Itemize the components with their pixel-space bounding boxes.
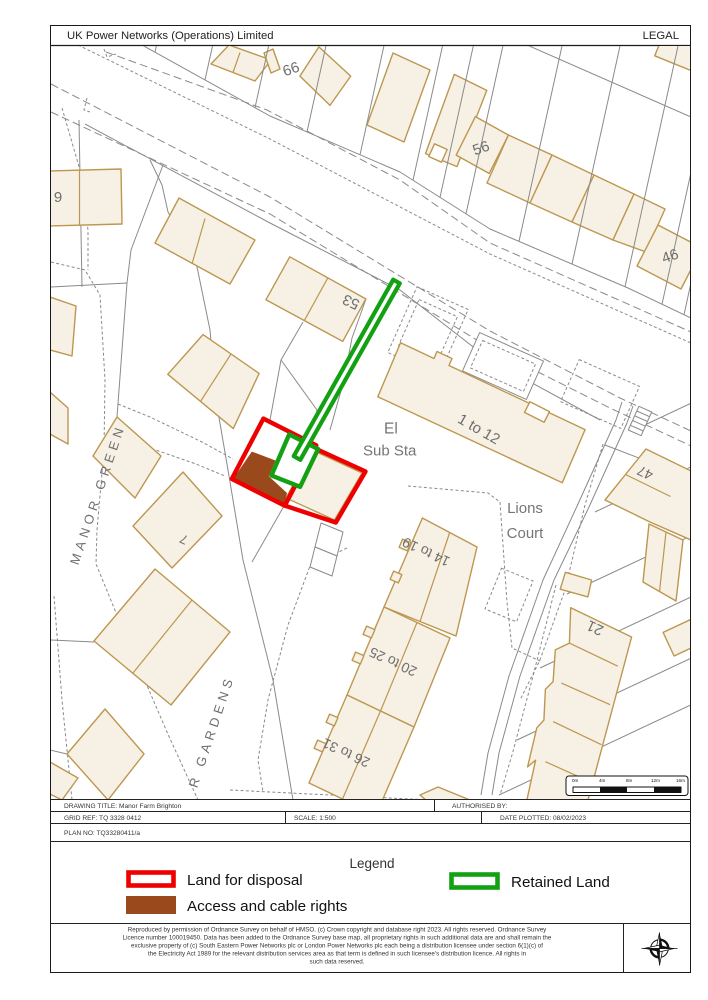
svg-text:R GARDENS: R GARDENS bbox=[186, 673, 238, 789]
svg-text:GRID REF: TQ 3328 0412: GRID REF: TQ 3328 0412 bbox=[64, 815, 142, 822]
svg-text:16m: 16m bbox=[676, 778, 685, 783]
svg-text:Sub Sta: Sub Sta bbox=[363, 443, 417, 460]
svg-text:4m: 4m bbox=[599, 778, 606, 783]
svg-text:exclusive property of (c) Sout: exclusive property of (c) South Eastern … bbox=[131, 943, 543, 950]
svg-text:Legend: Legend bbox=[349, 856, 394, 871]
svg-text:8m: 8m bbox=[626, 778, 633, 783]
svg-text:Land for disposal: Land for disposal bbox=[187, 872, 303, 889]
svg-text:Lions: Lions bbox=[507, 500, 543, 517]
svg-text:9: 9 bbox=[54, 189, 62, 206]
svg-text:Licence number 100019450. Data: Licence number 100019450. Data has been … bbox=[123, 935, 552, 942]
svg-text:El: El bbox=[384, 421, 398, 438]
svg-text:Retained Land: Retained Land bbox=[511, 874, 610, 891]
svg-text:DATE PLOTTED: 08/02/2023: DATE PLOTTED: 08/02/2023 bbox=[500, 815, 586, 822]
svg-text:Court: Court bbox=[507, 525, 545, 542]
svg-text:0m: 0m bbox=[572, 778, 579, 783]
svg-text:AUTHORISED BY:: AUTHORISED BY: bbox=[452, 803, 507, 810]
svg-text:SCALE: 1:500: SCALE: 1:500 bbox=[294, 815, 336, 822]
svg-text:66: 66 bbox=[280, 59, 301, 81]
svg-text:the Electricity Act 1989 for t: the Electricity Act 1989 for the relevan… bbox=[148, 951, 527, 958]
svg-text:PLAN NO: TQ33280411/a: PLAN NO: TQ33280411/a bbox=[64, 830, 140, 837]
svg-text:Access and cable rights: Access and cable rights bbox=[187, 898, 348, 915]
svg-text:UK Power Networks (Operations): UK Power Networks (Operations) Limited bbox=[67, 30, 274, 42]
svg-text:MANOR GREEN: MANOR GREEN bbox=[67, 422, 128, 567]
svg-text:such data reserved.: such data reserved. bbox=[310, 959, 365, 966]
svg-text:DRAWING TITLE: Manor Farm Brig: DRAWING TITLE: Manor Farm Brighton bbox=[64, 803, 182, 810]
svg-text:LEGAL: LEGAL bbox=[643, 30, 679, 42]
svg-text:12m: 12m bbox=[651, 778, 660, 783]
svg-text:Reproduced by permission of Or: Reproduced by permission of Ordnance Sur… bbox=[128, 927, 547, 934]
